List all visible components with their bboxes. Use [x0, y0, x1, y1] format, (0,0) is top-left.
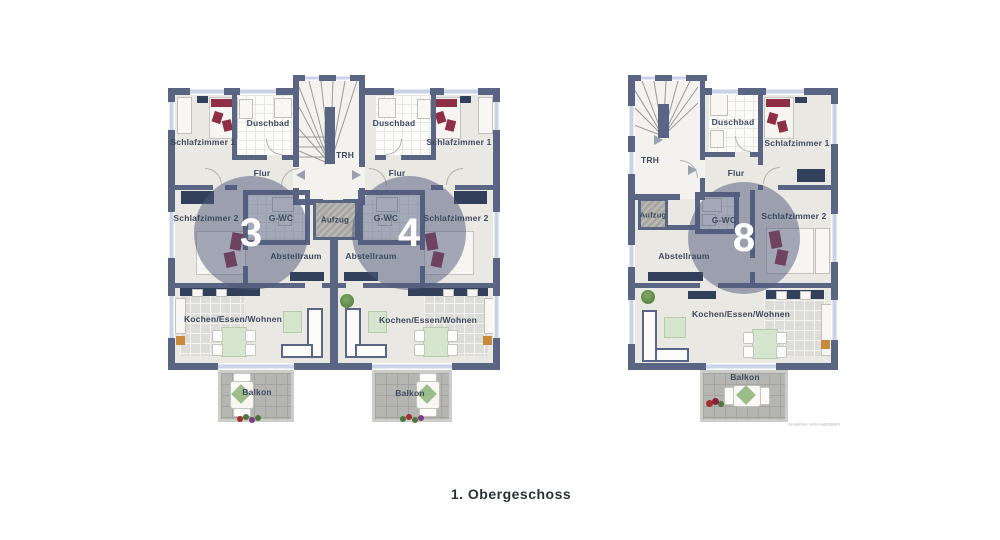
room-label-gwc-u3: G-WC [269, 213, 293, 223]
wall [628, 283, 700, 288]
plan-disclaimer: Grundrisse nicht maßstäblich [788, 422, 840, 427]
wall [168, 363, 218, 370]
stove-icon [800, 291, 811, 300]
stove-icon [216, 289, 227, 297]
wall [293, 75, 365, 81]
wall [282, 155, 293, 160]
room-label-abstellraum-u4: Abstellraum [345, 251, 396, 261]
kitchen-counter [766, 290, 824, 299]
kitchen-sink-icon [776, 291, 787, 300]
room-label-schlafzimmer2-u3: Schlafzimmer 2 [173, 213, 238, 223]
window [712, 88, 738, 95]
chair-icon [743, 332, 754, 344]
chair-icon [414, 344, 425, 356]
wall [750, 152, 763, 157]
tv-icon [197, 96, 208, 103]
tv-icon [460, 96, 471, 103]
balcony-door [218, 363, 294, 370]
room-label-balkon-u3: Balkon [242, 387, 272, 397]
room-label-balkon-u8: Balkon [730, 372, 760, 382]
cabinet-icon [483, 336, 492, 345]
room-label-gwc-u8: G-WC [712, 215, 736, 225]
window [493, 102, 500, 130]
window [493, 296, 500, 338]
window [672, 75, 686, 81]
room-label-kew-u3: Kochen/Essen/Wohnen [184, 314, 282, 324]
window [190, 88, 224, 95]
coffee-table-icon [283, 311, 302, 333]
window [831, 300, 838, 340]
floor-caption: 1. Obergeschoss [451, 486, 571, 502]
shower-icon [378, 98, 396, 118]
chair-icon [776, 346, 787, 358]
sink-icon [417, 99, 431, 119]
unit-number-8: 8 [733, 216, 755, 261]
balcony-door [706, 363, 776, 370]
wardrobe-icon [177, 97, 192, 134]
wall [168, 185, 213, 190]
wall [452, 363, 500, 370]
unit-circle-4: 4 [352, 176, 466, 290]
chair-icon [743, 346, 754, 358]
sofa-icon [281, 344, 313, 358]
stair-wall-stub [658, 104, 669, 138]
flowers-icon [237, 414, 261, 423]
sink-icon [710, 130, 724, 148]
room-label-schlafzimmer1-u8: Schlafzimmer 1 [764, 138, 829, 148]
window [831, 104, 838, 144]
wall [359, 75, 365, 167]
chair-icon [245, 330, 256, 342]
wall [705, 152, 735, 157]
entrance-arrow-right-icon [352, 170, 361, 180]
window [628, 245, 635, 267]
shelf-icon [290, 272, 324, 281]
tv-lowboard-icon [688, 291, 716, 299]
room-label-gwc-u4: G-WC [374, 213, 398, 223]
plant-icon [340, 294, 354, 308]
dining-table-icon [752, 329, 778, 359]
room-label-duschbad-u8: Duschbad [712, 117, 755, 127]
bed-pillow [211, 99, 234, 107]
bed-pillow [766, 99, 790, 107]
entrance-arrow-icon [688, 165, 697, 175]
window [628, 300, 635, 344]
wall [293, 75, 299, 167]
wall [294, 363, 372, 370]
kitchen-sink-icon [192, 289, 203, 297]
window [493, 212, 500, 258]
wall [776, 363, 838, 370]
room-label-flur-u3: Flur [254, 168, 271, 178]
chair-icon [245, 344, 256, 356]
unit-circle-8: 8 [688, 182, 800, 294]
flowers-icon [706, 398, 726, 408]
wall [338, 283, 346, 288]
flowers-icon [400, 414, 424, 423]
room-label-trh-right: TRH [641, 155, 659, 165]
shower-icon [274, 98, 292, 118]
wall [700, 75, 705, 160]
chair-icon [233, 373, 251, 382]
room-label-abstellraum-u8: Abstellraum [658, 251, 709, 261]
window [336, 75, 350, 81]
chair-icon [419, 373, 437, 382]
wall [375, 155, 386, 160]
unit-circle-3: 3 [194, 176, 308, 290]
window [394, 88, 430, 95]
window [641, 75, 655, 81]
desk-icon [797, 169, 825, 182]
wall [330, 240, 338, 363]
wall [455, 185, 500, 190]
entrance-arrow-icon [654, 135, 663, 145]
bed-pillow [434, 99, 457, 107]
unit-number-3: 3 [240, 211, 262, 256]
wall [401, 155, 436, 160]
sofa-icon [655, 348, 689, 362]
sink-icon [239, 99, 253, 119]
balcony-door [372, 363, 452, 370]
entrance-arrow-left-icon [296, 170, 305, 180]
room-label-flur-u8: Flur [728, 168, 745, 178]
room-label-schlafzimmer2-u8: Schlafzimmer 2 [761, 211, 826, 221]
room-label-flur-u4: Flur [389, 168, 406, 178]
cabinet-icon [821, 340, 830, 349]
chair-icon [447, 330, 458, 342]
room-label-schlafzimmer2-u4: Schlafzimmer 2 [423, 213, 488, 223]
chair-icon [447, 344, 458, 356]
room-label-schlafzimmer1-u3: Schlafzimmer 1 [170, 137, 235, 147]
chair-icon [212, 344, 223, 356]
stair-wall-stub [325, 107, 335, 164]
window [305, 75, 319, 81]
room-label-kew-u4: Kochen/Essen/Wohnen [379, 315, 477, 325]
floor-plan-canvas: 3 4 Schlafzimmer 1 Duschbad Flur Schlafz… [0, 0, 1000, 540]
plant-icon [641, 290, 655, 304]
window [168, 102, 175, 130]
stove-icon [443, 289, 454, 297]
window [628, 152, 635, 174]
window [831, 214, 838, 262]
window [628, 106, 635, 136]
cabinet-icon [176, 336, 185, 345]
dining-table-icon [423, 327, 449, 357]
room-label-schlafzimmer1-u4: Schlafzimmer 1 [426, 137, 491, 147]
window [240, 88, 276, 95]
room-label-duschbad-u3: Duschbad [247, 118, 290, 128]
room-label-trh-left: TRH [336, 150, 354, 160]
wall [778, 185, 831, 190]
room-label-kew-u8: Kochen/Essen/Wohnen [692, 309, 790, 319]
dining-table-icon [221, 327, 247, 357]
sofa-icon [355, 344, 387, 358]
room-label-duschbad-u4: Duschbad [373, 118, 416, 128]
shelf-icon [648, 272, 703, 281]
window [444, 88, 478, 95]
chair-icon [760, 387, 770, 405]
room-label-abstellraum-u3: Abstellraum [270, 251, 321, 261]
chair-icon [414, 330, 425, 342]
unit-number-4: 4 [398, 211, 420, 256]
tv-icon [795, 97, 807, 103]
room-label-aufzug-left: Aufzug [321, 216, 349, 225]
room-label-aufzug-right: Aufzug [640, 211, 667, 220]
chair-icon [212, 330, 223, 342]
room-label-balkon-u4: Balkon [395, 388, 425, 398]
wardrobe-icon [815, 228, 830, 274]
coffee-table-icon [664, 317, 686, 338]
shower-icon [710, 94, 728, 116]
chair-icon [776, 332, 787, 344]
desk-icon [454, 191, 487, 204]
window [766, 88, 804, 95]
wall [322, 283, 330, 288]
window [168, 296, 175, 338]
wall [628, 363, 706, 370]
kitchen-sink-icon [467, 289, 478, 297]
wall [232, 155, 267, 160]
wardrobe-icon [478, 97, 493, 134]
